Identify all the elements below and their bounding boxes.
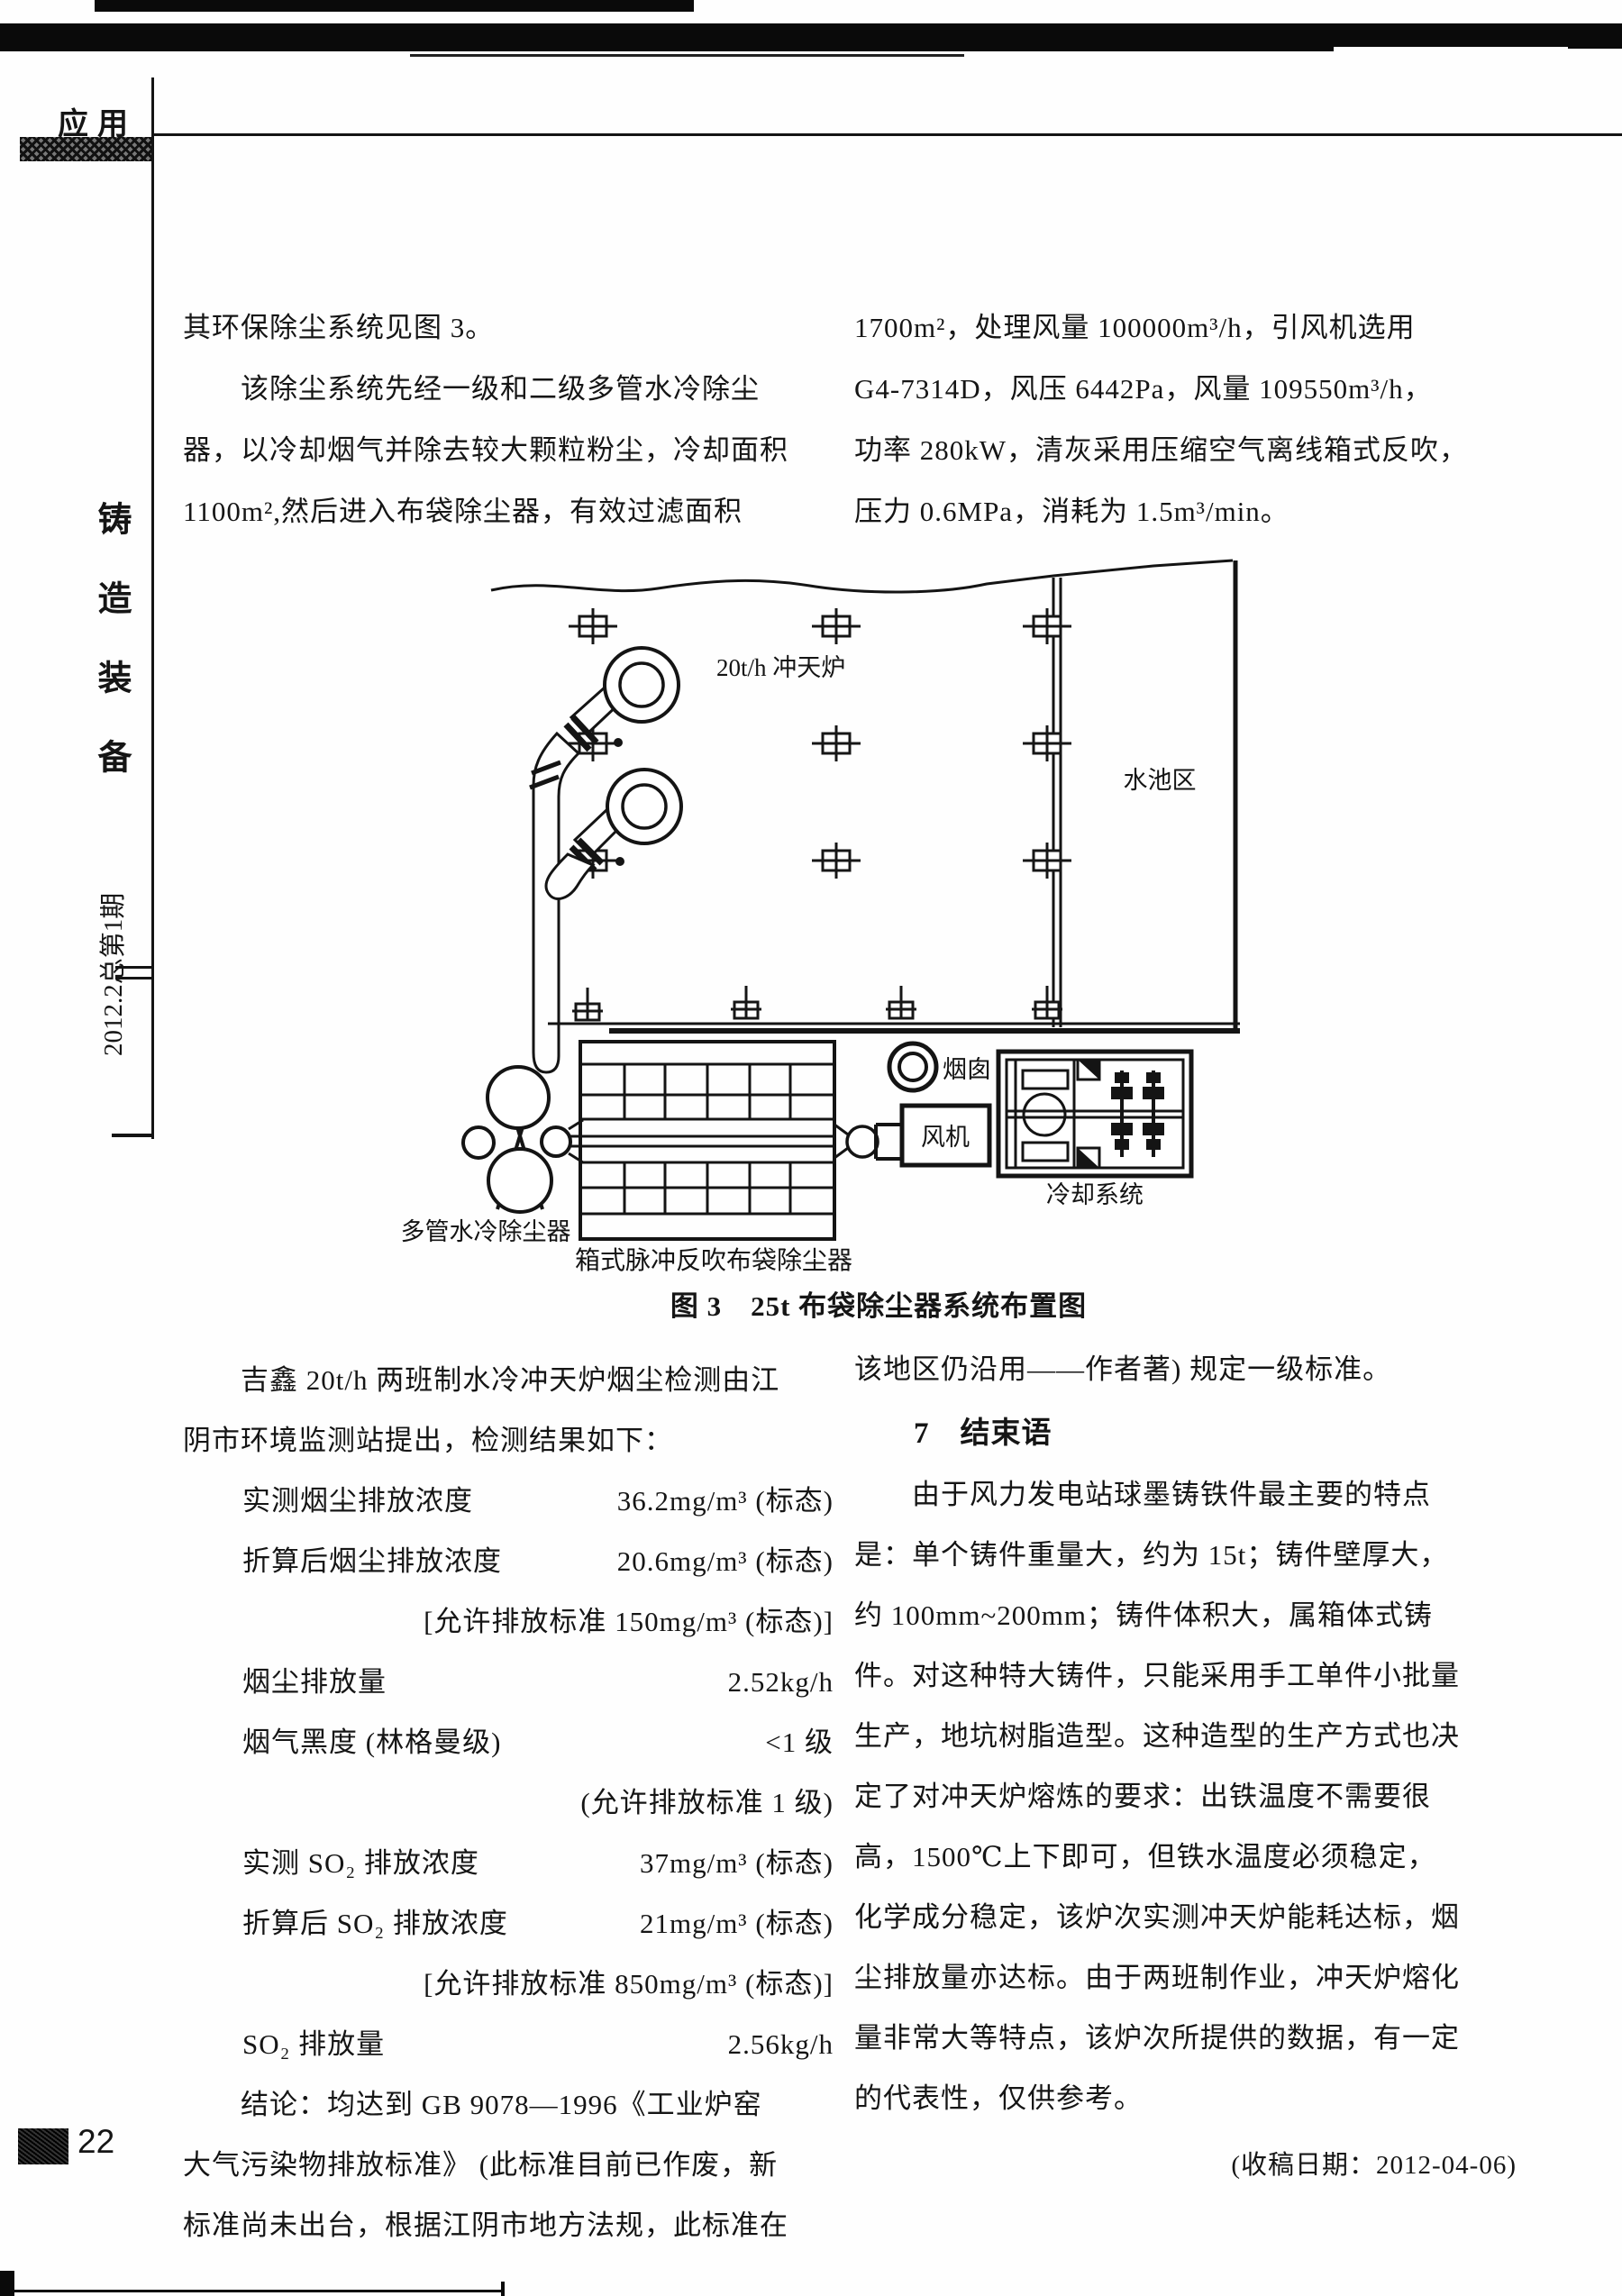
page-number-block — [18, 2128, 68, 2164]
text-line: 化学成分稳定，该炉次实测冲天炉能耗达标，烟 — [854, 1887, 1535, 1947]
sidebar-tick-2 — [115, 977, 151, 979]
measurement-value: <1 级 — [765, 1712, 834, 1772]
measurement-value: (允许排放标准 1 级) — [580, 1772, 834, 1833]
received-date: (收稿日期：2012-04-06) — [854, 2136, 1535, 2196]
measurement-value: 2.56kg/h — [728, 2014, 834, 2074]
text-line: 压力 0.6MPa，消耗为 1.5m³/min。 — [854, 481, 1535, 542]
scanned-journal-page: 应用 铸造装备 2012.2总第1期 其环保除尘系统见图 3。 该除尘系统先经一… — [0, 0, 1622, 2296]
tab-hatch-block — [20, 137, 151, 161]
measurement-label: 折算后 SO₂ 排放浓度 — [242, 1893, 508, 1954]
text-line: 尘排放量亦达标。由于两班制作业，冲天炉熔化 — [854, 1947, 1535, 2008]
measurement-value: [允许排放标准 150mg/m³ (标态)] — [424, 1591, 834, 1652]
cupola-1-inner — [620, 663, 663, 706]
text-line: 大气污染物排放标准》 (此标准目前已作废，新 — [183, 2135, 861, 2195]
text-line: 是：单个铸件重量大，约为 15t；铸件壁厚大， — [854, 1525, 1535, 1585]
measurement-label: 实测烟尘排放浓度 — [242, 1471, 473, 1531]
venturi-line — [834, 1125, 848, 1134]
duct-joint-circle — [847, 1126, 878, 1157]
multitube-label: 多管水冷除尘器 — [401, 1218, 571, 1245]
text-line: 功率 280kW，清灰采用压缩空气离线箱式反吹， — [854, 420, 1535, 481]
sidebar-tick-1 — [115, 966, 151, 969]
text-line: 结论：均达到 GB 9078—1996《工业炉窑 — [183, 2074, 861, 2135]
measurement-label: SO₂ 排放量 — [242, 2014, 385, 2074]
cupola-2-inner — [623, 785, 666, 828]
header-rule — [151, 133, 1622, 136]
cupola-dot — [614, 738, 623, 747]
measurement-row: 实测 SO₂ 排放浓度 37mg/m³ (标态) — [242, 1833, 834, 1893]
column-marker — [1023, 725, 1071, 761]
scan-artifact-thin-line — [410, 54, 964, 57]
baghouse-label: 箱式脉冲反吹布袋除尘器 — [575, 1246, 852, 1275]
text-line: 其环保除尘系统见图 3。 — [183, 297, 859, 359]
page-number: 22 — [77, 2123, 114, 2161]
measurement-row: SO₂ 排放量 2.56kg/h — [242, 2014, 834, 2074]
text-line: 定了对冲天炉熔炼的要求：出铁温度不需要很 — [854, 1766, 1535, 1827]
collector-tube — [488, 1067, 549, 1128]
intro-right-column: 1700m²，处理风量 100000m³/h，引风机选用 G4-7314D，风压… — [854, 297, 1535, 542]
measurement-label: 烟尘排放量 — [242, 1652, 387, 1712]
venturi-line — [834, 1148, 848, 1158]
measurement-label: 烟气黑度 (林格曼级) — [242, 1712, 501, 1772]
cupola-spout — [546, 854, 593, 898]
column-marker — [572, 988, 603, 1020]
text-line: 吉鑫 20t/h 两班制水冷冲天炉烟尘检测由江 — [183, 1350, 861, 1410]
measurement-value: 36.2mg/m³ (标态) — [617, 1471, 834, 1531]
measurement-value: 2.52kg/h — [728, 1652, 834, 1712]
measurement-row: (允许排放标准 1 级) — [242, 1772, 834, 1833]
column-marker — [886, 986, 916, 1018]
text-line: 1700m²，处理风量 100000m³/h，引风机选用 — [854, 297, 1535, 359]
measurement-value: 21mg/m³ (标态) — [640, 1893, 834, 1954]
column-marker — [1023, 608, 1071, 644]
text-line: 阴市环境监测站提出，检测结果如下： — [183, 1410, 861, 1471]
scan-artifact-top-strip — [95, 0, 694, 12]
collector-tube — [488, 1149, 551, 1212]
collector-tube-small — [542, 1127, 570, 1156]
text-line: 约 100mm~200mm；铸件体积大，属箱体式铸 — [854, 1585, 1535, 1645]
column-marker — [1023, 843, 1071, 879]
measurement-row: 实测烟尘排放浓度 36.2mg/m³ (标态) — [242, 1471, 834, 1531]
cupola-label: 20t/h 冲天炉 — [716, 654, 845, 681]
intro-left-column: 其环保除尘系统见图 3。 该除尘系统先经一级和二级多管水冷除尘 器，以冷却烟气并… — [183, 297, 859, 542]
measurement-label: 折算后烟尘排放浓度 — [242, 1531, 502, 1591]
cooling-label: 冷却系统 — [1046, 1181, 1144, 1208]
text-line: 件。对这种特大铸件，只能采用手工单件小批量 — [854, 1645, 1535, 1706]
text-line: 的代表性，仅供参考。 — [854, 2068, 1535, 2128]
text-line: 标准尚未出台，根据江阴市地方法规，此标准在 — [183, 2195, 861, 2255]
measurement-row: 烟尘排放量 2.52kg/h — [242, 1652, 834, 1712]
collector-tube-small — [463, 1127, 494, 1158]
building-roof-line — [491, 560, 1233, 592]
chimney-label: 烟囱 — [943, 1056, 991, 1083]
column-marker — [731, 986, 761, 1018]
measurement-row: 折算后 SO₂ 排放浓度 21mg/m³ (标态) — [242, 1893, 834, 1954]
sidebar-vertical-rule — [151, 77, 154, 1139]
sidebar-bottom-tick — [112, 1134, 153, 1137]
text-line: 生产，地坑树脂造型。这种造型的生产方式也决 — [854, 1706, 1535, 1766]
column-marker — [812, 843, 861, 879]
measurement-row: 折算后烟尘排放浓度 20.6mg/m³ (标态) — [242, 1531, 834, 1591]
emission-report-column: 吉鑫 20t/h 两班制水冷冲天炉烟尘检测由江 阴市环境监测站提出，检测结果如下… — [183, 1350, 861, 2255]
journal-issue-rotated: 2012.2总第1期 — [92, 768, 123, 1056]
scan-artifact-right-tick — [1568, 41, 1622, 49]
scan-artifact-bottom-tick — [501, 2282, 505, 2296]
section-heading: 7 结束语 — [854, 1399, 1535, 1464]
closing-column: 该地区仍沿用——作者著) 规定一级标准。 7 结束语 由于风力发电站球墨铸铁件最… — [854, 1339, 1535, 2196]
text-line: G4-7314D，风压 6442Pa，风量 109550m³/h， — [854, 359, 1535, 420]
measurement-row: [允许排放标准 850mg/m³ (标态)] — [242, 1954, 834, 2014]
cupola-dot — [615, 857, 624, 866]
fan-inlet-bracket — [876, 1125, 901, 1159]
text-line: 该地区仍沿用——作者著) 规定一级标准。 — [854, 1339, 1535, 1399]
chimney-inner — [899, 1053, 926, 1080]
baghouse-grid — [580, 1064, 834, 1214]
column-marker — [1032, 986, 1062, 1018]
scan-artifact-band-2 — [0, 43, 1334, 51]
measurement-value: 20.6mg/m³ (标态) — [617, 1531, 834, 1591]
text-line: 器，以冷却烟气并除去较大颗粒粉尘，冷却面积 — [183, 420, 859, 481]
pool-label: 水池区 — [1124, 767, 1197, 794]
figure-caption: 图 3 25t 布袋除尘器系统布置图 — [505, 1283, 1253, 1324]
column-marker — [812, 725, 861, 761]
measurement-row: 烟气黑度 (林格曼级) <1 级 — [242, 1712, 834, 1772]
measurement-row: [允许排放标准 150mg/m³ (标态)] — [242, 1591, 834, 1652]
measurement-value: [允许排放标准 850mg/m³ (标态)] — [424, 1954, 834, 2014]
column-marker — [812, 608, 861, 644]
text-line: 1100m²,然后进入布袋除尘器，有效过滤面积 — [183, 481, 859, 542]
fan-label: 风机 — [921, 1124, 970, 1151]
text-line: 该除尘系统先经一级和二级多管水冷除尘 — [183, 359, 859, 420]
text-line: 由于风力发电站球墨铸铁件最主要的特点 — [854, 1464, 1535, 1525]
measurement-value: 37mg/m³ (标态) — [640, 1833, 834, 1893]
text-line: 量非常大等特点，该炉次所提供的数据，有一定 — [854, 2008, 1535, 2068]
text-line: 高，1500℃上下即可，但铁水温度必须稳定， — [854, 1827, 1535, 1887]
figure3-diagram: 水池区 2 — [360, 551, 1271, 1281]
measurement-label: 实测 SO₂ 排放浓度 — [242, 1833, 479, 1893]
column-marker — [569, 608, 617, 644]
scan-artifact-bottom-line — [0, 2290, 503, 2292]
